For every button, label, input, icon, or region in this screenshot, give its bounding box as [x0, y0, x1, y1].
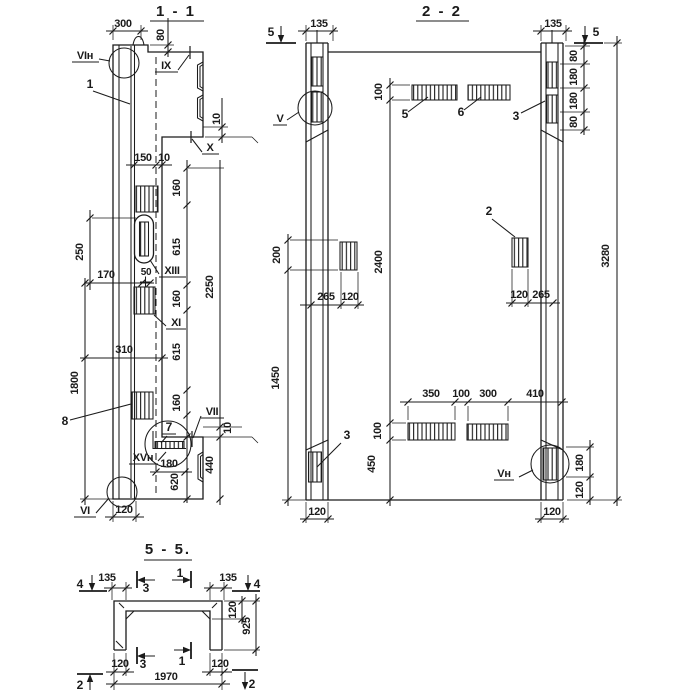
- dim-410: 410: [526, 388, 544, 400]
- dim-1970: 1970: [154, 671, 177, 683]
- face-plate-bottom-2: [467, 424, 508, 440]
- section-1-1-title: 1 - 1: [156, 3, 196, 20]
- cut-marker-5-left: 5: [268, 25, 275, 39]
- part-label-8: 8: [62, 414, 69, 428]
- dim-170: 170: [97, 269, 115, 281]
- dim-265-left: 265: [317, 291, 335, 303]
- panel-inner-lines: [119, 45, 135, 499]
- detail-circle-vi: [107, 477, 137, 507]
- callout-xvn: XVн: [133, 452, 153, 464]
- dim-160-a: 160: [171, 179, 183, 197]
- section-5-5: 5 - 5. 4 4 3 1 3 1 2 2 135 135 120 925 1…: [77, 541, 261, 692]
- face-plate-5: [412, 85, 457, 100]
- dim-80-a: 80: [568, 50, 580, 62]
- part-label-3-bottom: 3: [344, 428, 351, 442]
- embedded-plate-c: [132, 392, 153, 419]
- dim-120-leg-right: 120: [211, 658, 229, 670]
- dim-135-left: 135: [98, 572, 116, 584]
- dim-300: 300: [114, 18, 132, 30]
- rib-center-ticks: [317, 30, 552, 43]
- drawing-sheet: 1 - 1 VIн: [0, 0, 700, 700]
- dim-120-leg-left: 120: [111, 658, 129, 670]
- callout-ix: IX: [161, 60, 172, 72]
- dim-10-step: 10: [158, 152, 170, 164]
- section-5-5-title: 5 - 5.: [145, 541, 191, 558]
- rib-plate-left-top-1: [312, 57, 324, 86]
- part-label-6: 6: [458, 105, 465, 119]
- cut-marker-3-bottom: 3: [140, 657, 147, 671]
- dim-1450: 1450: [270, 366, 282, 389]
- dim-100-top: 100: [373, 83, 385, 101]
- face-plate-6: [468, 85, 510, 100]
- dim-350: 350: [422, 388, 440, 400]
- dim-100-row: 100: [452, 388, 470, 400]
- dim-80: 80: [155, 29, 167, 41]
- rib-plate-right-top-2: [547, 95, 559, 123]
- callout-vii: VII: [206, 406, 219, 418]
- cut-5-arrowheads: [278, 35, 588, 43]
- dim-250: 250: [74, 243, 86, 261]
- dim-300-row: 300: [479, 388, 497, 400]
- edge-notch-lower: [198, 95, 204, 121]
- cut-marker-1-top: 1: [177, 566, 184, 580]
- part-label-5: 5: [402, 107, 409, 121]
- dim-615-a: 615: [171, 238, 183, 256]
- cut-marker-2-right: 2: [249, 677, 256, 691]
- embedded-plate-a: [136, 186, 158, 212]
- dim-50: 50: [141, 267, 152, 278]
- face-plate-bottom-1: [408, 423, 455, 440]
- face-plate-2: [512, 238, 528, 267]
- callout-vi: VI: [80, 505, 90, 517]
- dim-120-rib-left: 120: [308, 506, 326, 518]
- embedded-plate-b: [134, 287, 155, 314]
- detail-7-step-hatch: [155, 442, 184, 449]
- dim-620: 620: [169, 473, 181, 491]
- part-label-7: 7: [166, 420, 173, 434]
- dim-3280: 3280: [600, 244, 612, 267]
- cut-marker-2-left: 2: [77, 678, 84, 692]
- edge-notch-bottom: [198, 452, 203, 482]
- dim-450: 450: [366, 455, 378, 473]
- dim-2400: 2400: [373, 250, 385, 273]
- cut-marker-4-left: 4: [77, 577, 84, 591]
- embedded-capsule-plate: [140, 222, 149, 256]
- dim-310: 310: [115, 344, 133, 356]
- section-2-2-title: 2 - 2: [422, 3, 462, 20]
- leader-lines: [287, 97, 545, 477]
- dim-120-flange: 120: [227, 601, 239, 619]
- dim-180-right: 180: [574, 454, 586, 472]
- rib-plate-right-top-1: [547, 62, 559, 88]
- section-2-2: 2 - 2 5 5: [266, 3, 622, 523]
- rib-plate-left-bottom: [309, 452, 322, 482]
- cut-marker-3-top: 3: [143, 581, 150, 595]
- channel-corner-marks: [116, 603, 217, 648]
- lifting-loop: [133, 37, 144, 46]
- dim-135-left: 135: [310, 18, 328, 30]
- dim-120-rib-right: 120: [543, 506, 561, 518]
- dim-180: 180: [160, 458, 178, 470]
- part-label-1: 1: [87, 77, 94, 91]
- cut-marker-4-right: 4: [254, 577, 261, 591]
- callout-v: V: [276, 113, 284, 125]
- rib-plate-right-bottom: [543, 448, 558, 480]
- part-label-3-top: 3: [513, 109, 520, 123]
- dim-160-c: 160: [171, 394, 183, 412]
- dim-10-top: 10: [211, 113, 223, 125]
- dim-120-left: 120: [341, 291, 359, 303]
- anchor-cross-mark: [140, 277, 151, 288]
- dim-135-right: 135: [219, 572, 237, 584]
- cut-marker-bars: [77, 571, 260, 674]
- extension-lines: [112, 582, 260, 690]
- dim-10-bottom: 10: [222, 422, 234, 434]
- channel-inner: [126, 611, 210, 650]
- dim-180-b: 180: [568, 92, 580, 110]
- dim-120-bottom: 120: [115, 504, 133, 516]
- dim-265-right: 265: [532, 289, 550, 301]
- technical-drawing: 1 - 1 VIн: [0, 0, 700, 700]
- dim-180-a: 180: [568, 68, 580, 86]
- part-label-2: 2: [486, 204, 493, 218]
- dim-2250: 2250: [204, 275, 216, 298]
- dim-1800: 1800: [69, 371, 81, 394]
- dim-615-b: 615: [171, 343, 183, 361]
- cut-marker-1-bottom: 1: [179, 654, 186, 668]
- face-plate-left-mid: [340, 242, 357, 270]
- cut-marker-5-right: 5: [593, 25, 600, 39]
- callout-xiii: XIII: [164, 265, 180, 277]
- section-1-1: 1 - 1 VIн: [62, 3, 258, 522]
- dim-135-right: 135: [544, 18, 562, 30]
- dim-925: 925: [241, 617, 253, 635]
- callout-vn: Vн: [497, 468, 510, 480]
- edge-notch-upper: [198, 62, 204, 91]
- rib-plate-left-top-2: [312, 92, 324, 122]
- dim-120-right: 120: [510, 289, 528, 301]
- callout-x: X: [206, 142, 214, 154]
- dim-440: 440: [204, 456, 216, 474]
- channel-outer: [114, 601, 222, 650]
- dim-200: 200: [271, 246, 283, 264]
- dim-120-right-chain: 120: [574, 481, 586, 499]
- callout-xi: XI: [171, 317, 181, 329]
- callout-vin: VIн: [77, 50, 93, 62]
- dim-150: 150: [134, 152, 152, 164]
- dim-160-b: 160: [171, 290, 183, 308]
- dim-80-b: 80: [568, 116, 580, 128]
- dim-100-bottom: 100: [372, 422, 384, 440]
